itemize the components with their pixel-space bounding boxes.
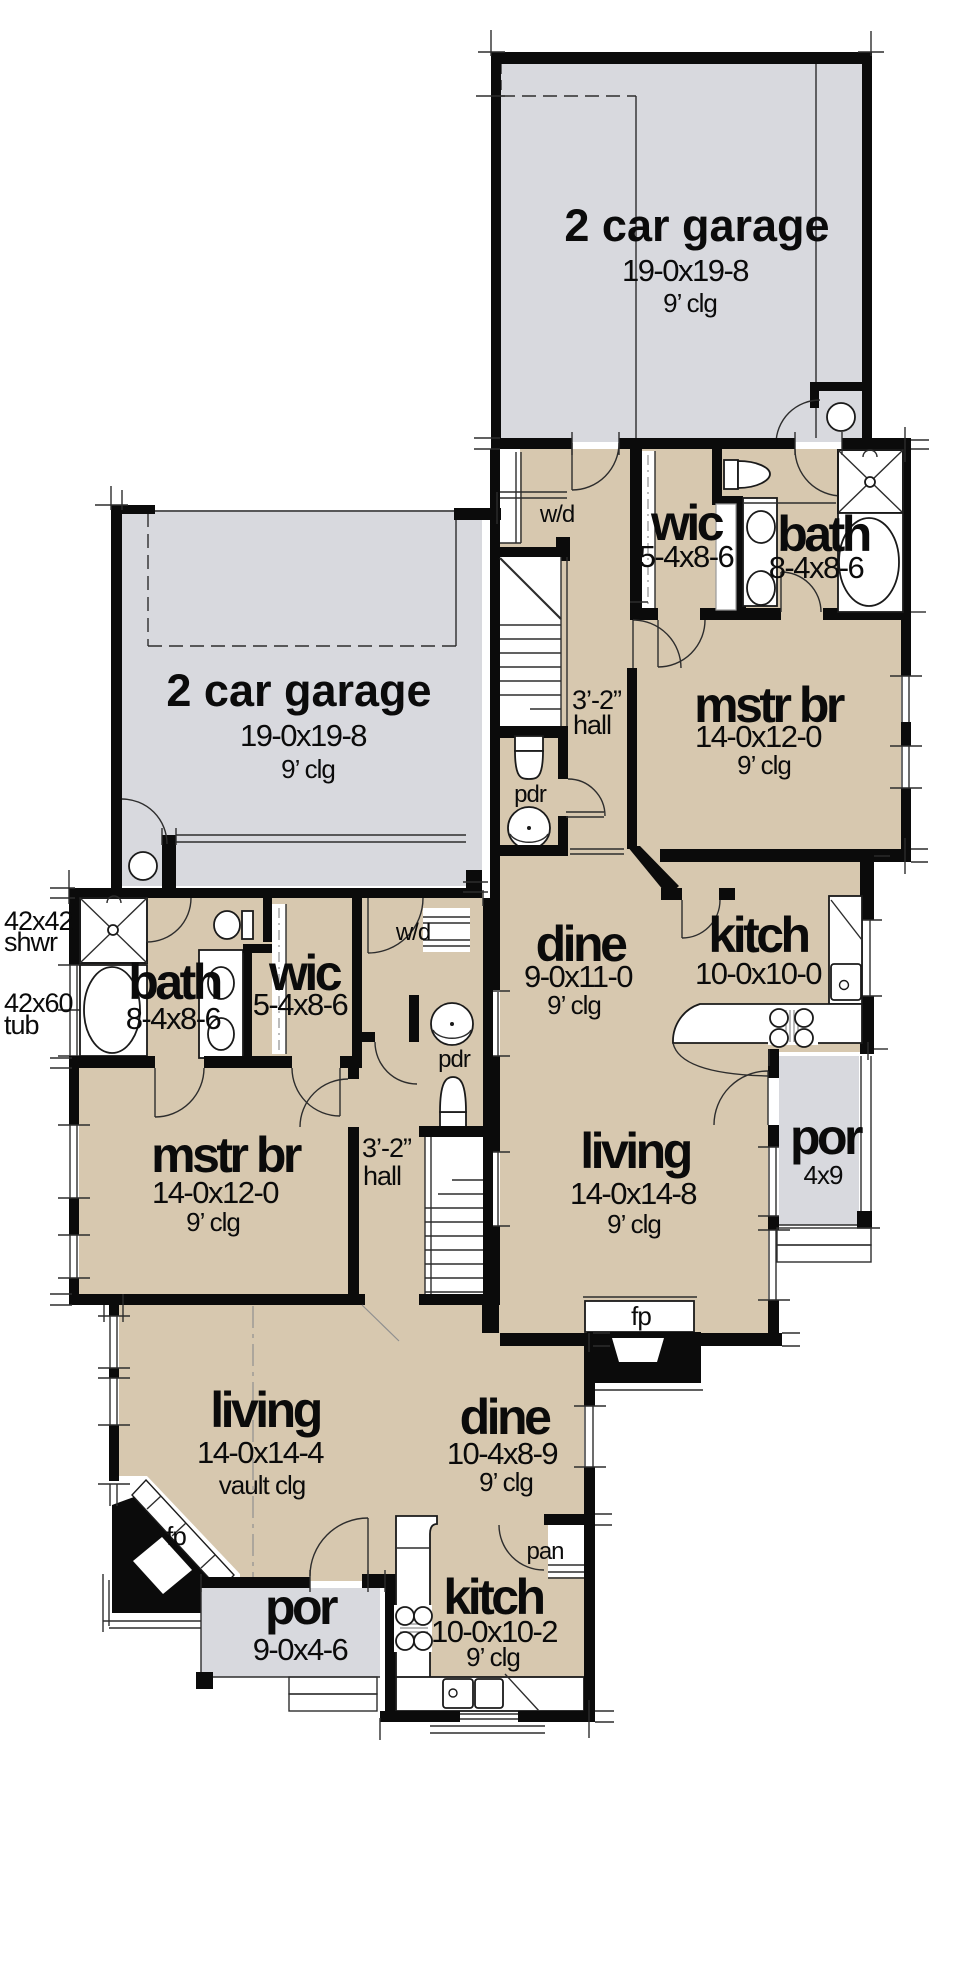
- svg-text:10-0x10-0: 10-0x10-0: [695, 956, 822, 991]
- svg-text:5-4x8-6: 5-4x8-6: [639, 539, 734, 574]
- svg-text:9’ clg: 9’ clg: [547, 990, 601, 1020]
- svg-text:por: por: [790, 1109, 863, 1165]
- svg-text:9’ clg: 9’ clg: [663, 288, 717, 318]
- svg-text:hall: hall: [573, 710, 611, 740]
- svg-text:9’ clg: 9’ clg: [737, 750, 791, 780]
- svg-text:hall: hall: [363, 1161, 401, 1191]
- svg-text:living: living: [210, 1382, 321, 1438]
- svg-text:2 car garage: 2 car garage: [166, 665, 431, 716]
- svg-text:w/d: w/d: [539, 501, 574, 528]
- svg-text:9’ clg: 9’ clg: [281, 754, 335, 784]
- svg-text:2 car garage: 2 car garage: [564, 200, 829, 251]
- svg-text:vault clg: vault clg: [219, 1470, 305, 1500]
- svg-text:4x9: 4x9: [804, 1160, 843, 1190]
- svg-text:w/d: w/d: [395, 919, 430, 946]
- svg-text:14-0x14-4: 14-0x14-4: [197, 1435, 324, 1470]
- svg-text:9’ clg: 9’ clg: [479, 1467, 533, 1497]
- svg-text:por: por: [265, 1579, 338, 1635]
- svg-text:14-0x12-0: 14-0x12-0: [695, 719, 822, 754]
- svg-text:5-4x8-6: 5-4x8-6: [253, 987, 348, 1022]
- svg-text:pdr: pdr: [438, 1046, 471, 1073]
- svg-text:shwr: shwr: [4, 927, 58, 957]
- svg-text:14-0x12-0: 14-0x12-0: [152, 1175, 279, 1210]
- svg-text:8-4x8-6: 8-4x8-6: [769, 550, 864, 585]
- svg-text:8-4x8-6: 8-4x8-6: [126, 1001, 221, 1036]
- svg-text:9-0x4-6: 9-0x4-6: [253, 1632, 348, 1667]
- svg-text:19-0x19-8: 19-0x19-8: [622, 253, 748, 288]
- svg-text:9’ clg: 9’ clg: [186, 1207, 240, 1237]
- svg-text:fp: fp: [631, 1301, 651, 1331]
- svg-text:14-0x14-8: 14-0x14-8: [570, 1176, 696, 1211]
- svg-text:10-4x8-9: 10-4x8-9: [447, 1436, 558, 1471]
- svg-text:9-0x11-0: 9-0x11-0: [524, 959, 633, 994]
- svg-text:pan: pan: [526, 1538, 563, 1565]
- svg-text:pdr: pdr: [514, 781, 547, 808]
- svg-text:kitch: kitch: [708, 907, 808, 963]
- svg-text:3’-2”: 3’-2”: [362, 1133, 411, 1163]
- svg-text:9’ clg: 9’ clg: [607, 1209, 661, 1239]
- svg-text:fp: fp: [166, 1521, 186, 1551]
- svg-text:tub: tub: [4, 1010, 39, 1040]
- svg-text:living: living: [580, 1123, 691, 1179]
- svg-text:19-0x19-8: 19-0x19-8: [240, 718, 366, 753]
- svg-text:9’ clg: 9’ clg: [466, 1642, 520, 1672]
